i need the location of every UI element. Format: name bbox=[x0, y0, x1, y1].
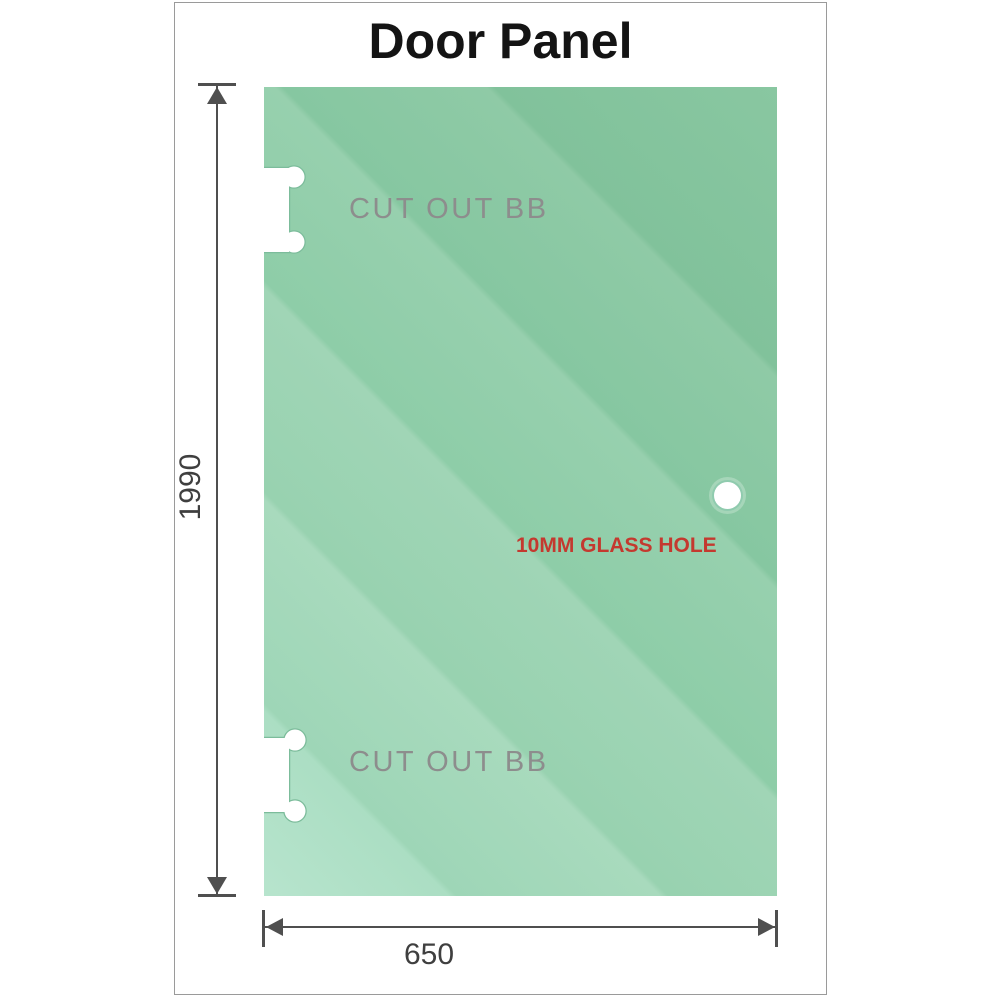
arrow-up-icon bbox=[207, 87, 227, 104]
hinge-cutout-bottom-icon bbox=[264, 726, 312, 826]
arrow-down-icon bbox=[207, 877, 227, 894]
height-dimension-bottom-tick bbox=[198, 894, 236, 897]
width-dimension-line bbox=[264, 926, 776, 928]
cutout-top-label: CUT OUT BB bbox=[349, 193, 549, 226]
arrow-left-icon bbox=[266, 918, 283, 936]
height-dimension-label: 1990 bbox=[174, 427, 208, 547]
cutout-bottom-label: CUT OUT BB bbox=[349, 746, 549, 779]
height-dimension-top-tick bbox=[198, 83, 236, 86]
height-dimension-line bbox=[216, 86, 218, 896]
diagram-title: Door Panel bbox=[174, 12, 827, 70]
glass-hole-label: 10MM GLASS HOLE bbox=[516, 534, 717, 558]
width-dimension-right-tick bbox=[775, 910, 778, 947]
hinge-cutout-top-icon bbox=[264, 158, 312, 258]
width-dimension-left-tick bbox=[262, 910, 265, 947]
arrow-right-icon bbox=[758, 918, 775, 936]
glass-hole-icon bbox=[714, 482, 741, 509]
width-dimension-label: 650 bbox=[404, 938, 454, 972]
